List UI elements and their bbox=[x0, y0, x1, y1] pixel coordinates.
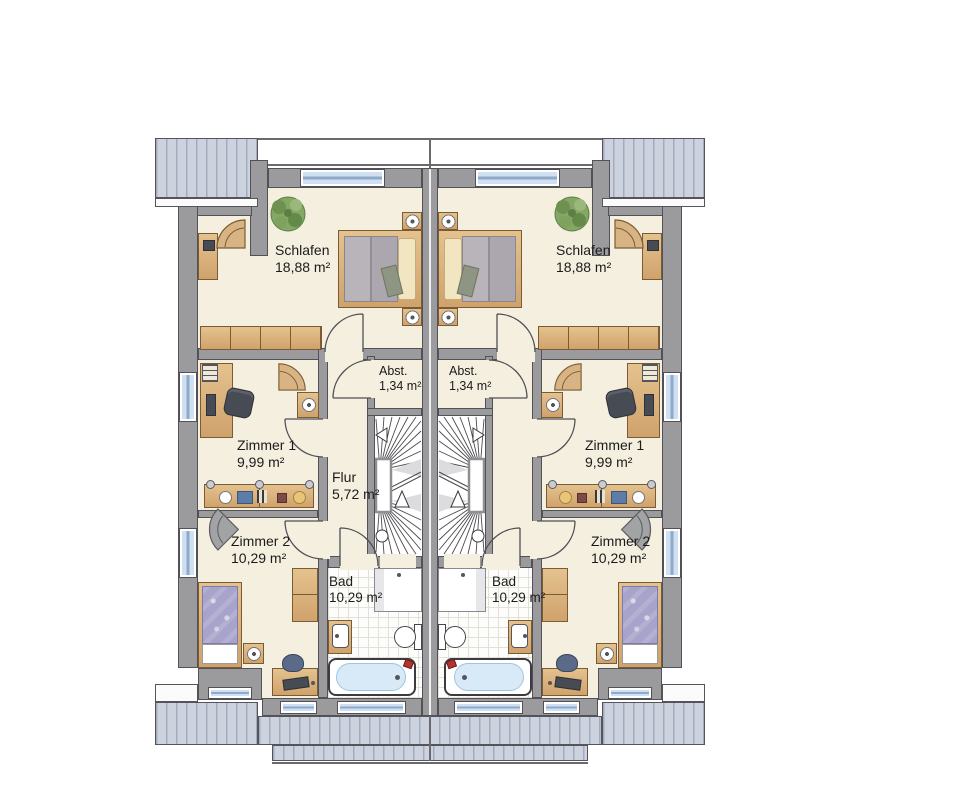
door-opening-schlafen-right bbox=[497, 346, 535, 362]
wardrobe-schlafen-right bbox=[538, 326, 660, 350]
door-opening-zimmer1-right bbox=[530, 419, 544, 457]
room-area: 18,88 m² bbox=[275, 259, 330, 276]
room-label-flur-left: Flur 5,72 m² bbox=[332, 469, 379, 503]
window-zimmer2-left bbox=[179, 528, 197, 578]
sideboard-knob bbox=[255, 480, 264, 489]
drain bbox=[395, 675, 400, 680]
drain bbox=[462, 675, 467, 680]
shelf-zimmer1-left bbox=[202, 364, 218, 382]
monitor-zimmer1-left bbox=[206, 394, 216, 416]
plant-icon bbox=[266, 192, 310, 236]
keyboard bbox=[554, 676, 581, 691]
bowl-yellow bbox=[293, 491, 306, 504]
plate bbox=[632, 491, 645, 504]
nightstand-left-top bbox=[402, 212, 422, 230]
wardrobe-schlafen-left bbox=[200, 326, 322, 350]
window-zimmer1-right bbox=[663, 372, 681, 422]
roof-fascia-bottom-left bbox=[155, 684, 198, 702]
armchair-zimmer1-left bbox=[277, 360, 309, 392]
armchair-schlafen-right bbox=[613, 216, 647, 250]
single-bed-sheet-right bbox=[622, 644, 658, 664]
bowl-yellow bbox=[559, 491, 572, 504]
room-area: 18,88 m² bbox=[556, 259, 611, 276]
round-table-icon bbox=[246, 646, 262, 662]
room-floor-flur-left bbox=[328, 360, 367, 556]
room-label-abstellraum-left: Abst. 1,34 m² bbox=[379, 364, 421, 394]
mouse bbox=[548, 681, 552, 685]
room-label-zimmer2-right: Zimmer 2 10,29 m² bbox=[591, 533, 650, 567]
room-name: Bad bbox=[492, 574, 545, 590]
nightstand-left-bottom bbox=[402, 308, 422, 326]
roof-bottom-edge-line bbox=[272, 762, 588, 764]
lamp-icon bbox=[405, 310, 420, 325]
room-name: Abst. bbox=[379, 364, 421, 379]
washbasin-right bbox=[511, 624, 528, 648]
lamp-icon bbox=[441, 214, 456, 229]
window-zimmer2-bottom-right bbox=[608, 687, 652, 699]
wall-exterior-left bbox=[178, 200, 198, 668]
side-table-zimmer1-right bbox=[541, 392, 563, 418]
room-area: 10,29 m² bbox=[329, 590, 382, 606]
chair-zimmer2-left bbox=[282, 654, 304, 672]
box-blue bbox=[237, 491, 253, 504]
door-opening-zimmer2-left bbox=[316, 521, 330, 559]
mouse bbox=[311, 681, 315, 685]
sideboard-knob bbox=[305, 480, 314, 489]
wall-stair-right bbox=[485, 415, 493, 568]
door-opening-abstellraum-left bbox=[365, 360, 377, 398]
drain bbox=[397, 573, 401, 577]
room-label-bad-right: Bad 10,29 m² bbox=[492, 574, 545, 606]
sideboard-knob bbox=[548, 480, 557, 489]
shower-right bbox=[438, 568, 486, 612]
dormer-roof-top-right bbox=[602, 138, 705, 198]
room-area: 10,29 m² bbox=[591, 550, 650, 567]
keyboard bbox=[282, 676, 309, 691]
room-label-zimmer2-left: Zimmer 2 10,29 m² bbox=[231, 533, 290, 567]
room-label-schlafen-right: Schlafen 18,88 m² bbox=[556, 242, 611, 276]
window-schlafen-top-right bbox=[475, 169, 560, 187]
room-label-abstellraum-right: Abst. 1,34 m² bbox=[449, 364, 491, 394]
floor-plan: Schlafen 18,88 m² Schlafen 18,88 m² Zimm… bbox=[0, 0, 956, 800]
lamp-icon bbox=[441, 310, 456, 325]
tap bbox=[523, 634, 527, 638]
single-bed-sheet-left bbox=[202, 644, 238, 664]
roof-fascia-bottom-right bbox=[662, 684, 705, 702]
room-area: 10,29 m² bbox=[492, 590, 545, 606]
window-zimmer2-right bbox=[663, 528, 681, 578]
room-name: Zimmer 1 bbox=[585, 437, 644, 454]
door-opening-bad-left bbox=[340, 554, 378, 570]
single-bed-duvet-right bbox=[622, 586, 658, 644]
side-table-zimmer1-left bbox=[297, 392, 319, 418]
door-opening-schlafen-left bbox=[325, 346, 363, 362]
cabinet-zimmer2-left bbox=[292, 568, 318, 622]
sideboard-knob bbox=[598, 480, 607, 489]
window-bad-bottom-left-small bbox=[280, 701, 317, 714]
room-name: Zimmer 2 bbox=[231, 533, 290, 550]
office-chair-zimmer1-right bbox=[604, 386, 637, 419]
wall-exterior-right bbox=[662, 200, 682, 668]
tap bbox=[335, 634, 339, 638]
office-chair-zimmer1-left bbox=[222, 386, 255, 419]
bathtub-water-right bbox=[454, 663, 524, 691]
shelf-zimmer1-right bbox=[642, 364, 658, 382]
window-bad-bottom-left bbox=[337, 701, 406, 714]
room-name: Zimmer 1 bbox=[237, 437, 296, 454]
dormer-fascia-top-right bbox=[602, 198, 705, 207]
room-area: 9,99 m² bbox=[585, 454, 644, 471]
room-name: Schlafen bbox=[556, 242, 611, 259]
window-bad-bottom-right-small bbox=[543, 701, 580, 714]
sideboard-knob bbox=[647, 480, 656, 489]
small-item bbox=[577, 493, 587, 503]
room-name: Bad bbox=[329, 574, 382, 590]
room-area: 10,29 m² bbox=[231, 550, 290, 567]
room-label-zimmer1-left: Zimmer 1 9,99 m² bbox=[237, 437, 296, 471]
room-label-bad-left: Bad 10,29 m² bbox=[329, 574, 382, 606]
dormer-fascia-top-left bbox=[155, 198, 258, 207]
room-name: Schlafen bbox=[275, 242, 330, 259]
room-label-zimmer1-right: Zimmer 1 9,99 m² bbox=[585, 437, 644, 471]
window-zimmer2-bottom-left bbox=[208, 687, 252, 699]
window-zimmer1-left bbox=[179, 372, 197, 422]
drain bbox=[461, 573, 465, 577]
desk-zimmer2-right bbox=[542, 668, 588, 696]
desk-item bbox=[647, 240, 659, 251]
door-opening-zimmer1-left bbox=[316, 419, 330, 457]
books bbox=[257, 490, 267, 503]
dormer-roof-top-left bbox=[155, 138, 258, 198]
sideboard-knob bbox=[206, 480, 215, 489]
party-wall-line-top bbox=[429, 139, 431, 168]
room-area: 9,99 m² bbox=[237, 454, 296, 471]
door-opening-zimmer2-right bbox=[530, 521, 544, 559]
room-floor-flur-right bbox=[493, 360, 532, 556]
staircase-left bbox=[375, 415, 422, 556]
monitor-zimmer1-right bbox=[644, 394, 654, 416]
window-schlafen-top-left bbox=[300, 169, 385, 187]
room-area: 1,34 m² bbox=[379, 379, 421, 394]
room-area: 5,72 m² bbox=[332, 486, 379, 503]
roof-bottom-corner-right bbox=[602, 702, 705, 745]
desk-zimmer2-left bbox=[272, 668, 318, 696]
round-table-icon bbox=[599, 646, 615, 662]
party-wall-line-bottom bbox=[429, 716, 431, 761]
room-label-schlafen-left: Schlafen 18,88 m² bbox=[275, 242, 330, 276]
staircase-right bbox=[438, 415, 485, 556]
party-wall-gap-line bbox=[429, 169, 431, 715]
toilet-right bbox=[444, 626, 466, 648]
room-name: Abst. bbox=[449, 364, 491, 379]
room-area: 1,34 m² bbox=[449, 379, 491, 394]
single-bed-duvet-left bbox=[202, 586, 238, 644]
box-blue bbox=[611, 491, 627, 504]
small-item bbox=[277, 493, 287, 503]
lamp-icon bbox=[405, 214, 420, 229]
armchair-schlafen-left bbox=[213, 216, 247, 250]
roof-bottom-corner-left bbox=[155, 702, 258, 745]
stool-zimmer2-left bbox=[243, 643, 264, 664]
books bbox=[595, 490, 605, 503]
room-name: Flur bbox=[332, 469, 379, 486]
plate bbox=[219, 491, 232, 504]
lamp-icon bbox=[545, 397, 561, 413]
armchair-zimmer1-right bbox=[551, 360, 583, 392]
plant-icon bbox=[550, 192, 594, 236]
toilet-left bbox=[394, 626, 416, 648]
washbasin-left bbox=[332, 624, 349, 648]
cabinet-zimmer2-right bbox=[542, 568, 568, 622]
room-name: Zimmer 2 bbox=[591, 533, 650, 550]
window-bad-bottom-right bbox=[454, 701, 523, 714]
bathtub-water-left bbox=[336, 663, 406, 691]
stool-zimmer2-right bbox=[596, 643, 617, 664]
nightstand-right-top bbox=[438, 212, 458, 230]
chair-zimmer2-right bbox=[556, 654, 578, 672]
door-opening-bad-right bbox=[482, 554, 520, 570]
lamp-icon bbox=[301, 397, 317, 413]
nightstand-right-bottom bbox=[438, 308, 458, 326]
